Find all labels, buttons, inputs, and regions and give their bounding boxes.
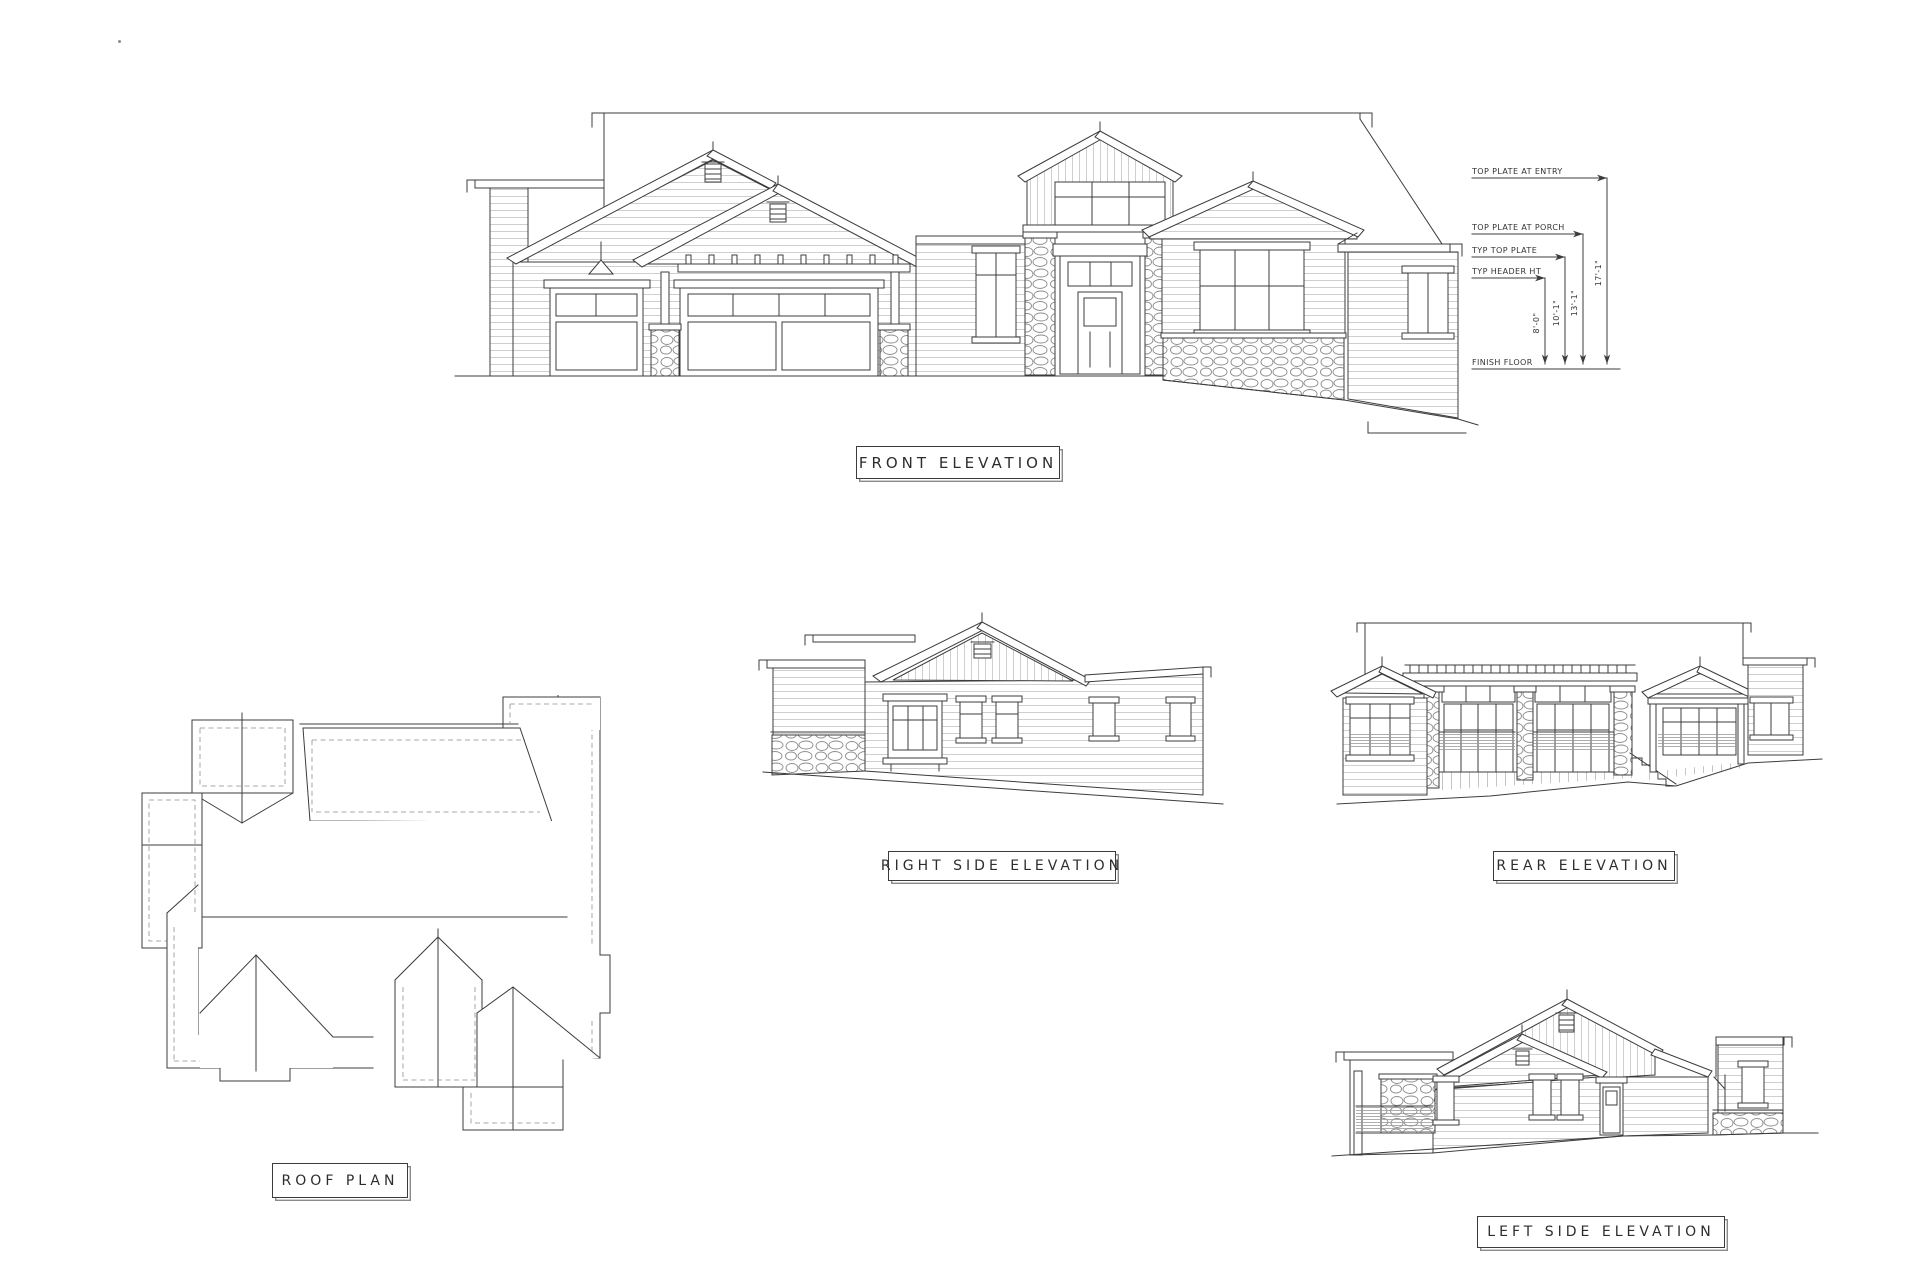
re-patio-roof xyxy=(1403,665,1637,681)
gable-vent-left xyxy=(702,162,724,182)
roof-top-right-block xyxy=(503,697,600,730)
callout-typ-header-ht: TYP HEADER HT xyxy=(1471,267,1541,276)
roof-plan-title-text: ROOF PLAN xyxy=(282,1173,399,1189)
gable-vent-right xyxy=(767,202,789,222)
mid-wall xyxy=(916,236,1027,376)
callout-top-plate-entry: TOP PLATE AT ENTRY xyxy=(1471,167,1563,176)
left-side-elevation-title: LEFT SIDE ELEVATION xyxy=(1477,1216,1725,1248)
right-side-elevation-drawing xyxy=(755,608,1250,843)
rs-left-wing xyxy=(759,660,865,775)
far-right-wing xyxy=(1338,233,1462,418)
right-side-elevation-title-text: RIGHT SIDE ELEVATION xyxy=(881,858,1123,874)
rear-elevation-drawing xyxy=(1330,612,1840,827)
front-elevation-title-text: FRONT ELEVATION xyxy=(859,454,1057,472)
roof-plan-title: ROOF PLAN xyxy=(272,1163,408,1198)
left-side-elevation-drawing xyxy=(1330,985,1830,1200)
roof-top-left-gable xyxy=(192,713,293,823)
garage-door-single xyxy=(544,280,650,376)
drawing-sheet: TOP PLATE AT ENTRY TOP PLATE AT PORCH TY… xyxy=(0,0,1920,1276)
dim-porch-height: 13'-1" xyxy=(1570,290,1579,316)
rs-rear-roof xyxy=(805,635,915,645)
left-side-elevation-title-text: LEFT SIDE ELEVATION xyxy=(1487,1224,1714,1240)
rear-elevation-title: REAR ELEVATION xyxy=(1493,851,1675,881)
re-right-wing xyxy=(1642,657,1754,780)
roof-top-trapezoid xyxy=(300,724,552,822)
garage-door-double xyxy=(674,280,884,376)
re-far-right-wing xyxy=(1743,658,1815,755)
front-elevation-dimensions: TOP PLATE AT ENTRY TOP PLATE AT PORCH TY… xyxy=(1468,158,1643,393)
entry-tower xyxy=(1018,122,1182,375)
dim-entry-height: 17'-1" xyxy=(1594,260,1603,286)
right-side-elevation-title: RIGHT SIDE ELEVATION xyxy=(888,851,1116,881)
entry-door xyxy=(1053,244,1147,374)
front-elevation-title: FRONT ELEVATION xyxy=(856,446,1060,479)
rs-main-gable xyxy=(873,613,1091,686)
dim-top-plate-height: 10'-1" xyxy=(1552,300,1561,326)
callout-top-plate-porch: TOP PLATE AT PORCH xyxy=(1471,223,1565,232)
callout-typ-top-plate: TYP TOP PLATE xyxy=(1471,246,1537,255)
rs-bay-window xyxy=(883,694,947,771)
re-patio-doors xyxy=(1438,686,1632,790)
front-elevation-drawing xyxy=(450,92,1480,442)
right-wing xyxy=(1142,172,1364,400)
callout-finish-floor: FINISH FLOOR xyxy=(1472,358,1533,367)
ls-right-wing xyxy=(1713,1037,1792,1135)
sheet-artifact-dot xyxy=(118,40,121,43)
dim-header-height: 8'-0" xyxy=(1532,313,1541,334)
rear-elevation-title-text: REAR ELEVATION xyxy=(1496,858,1671,874)
roof-plan-drawing xyxy=(140,695,660,1175)
